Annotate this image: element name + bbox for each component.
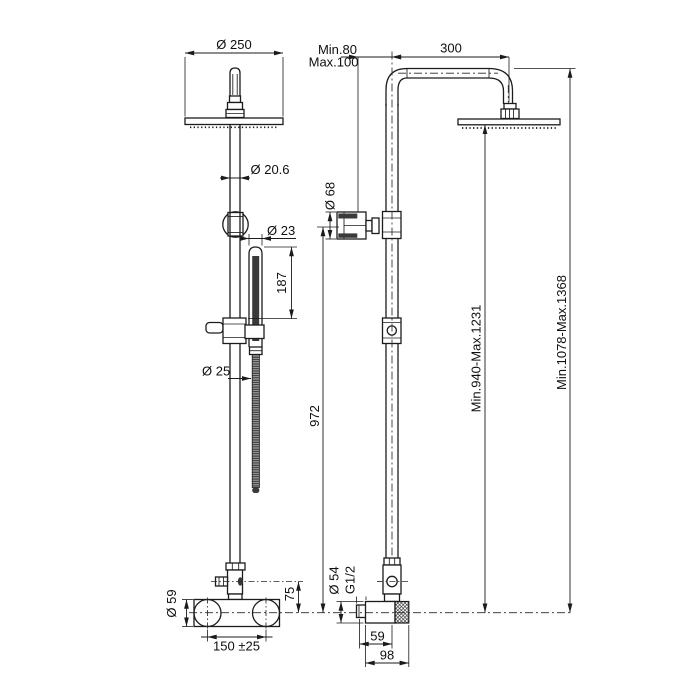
side-view: [337, 52, 560, 624]
dim-hose-diameter: Ø 25: [202, 364, 251, 379]
dim-arm-reach: 300: [392, 41, 509, 103]
dim-riser-length: 972: [307, 227, 339, 613]
label-head-height-range: Min.940-Max.1231: [468, 305, 483, 413]
front-mixer-valve: [194, 563, 280, 627]
side-handshower-assembly: [337, 212, 401, 240]
side-knurled-knob: [395, 602, 409, 624]
dim-union-diameter: Ø 59: [164, 589, 193, 626]
label-total-depth: 98: [380, 648, 394, 663]
front-head-connector: [226, 68, 244, 118]
label-connection-thread: G1/2: [342, 566, 357, 594]
label-wall-distance-max: Max.100: [309, 55, 359, 70]
side-shower-arm: [386, 69, 513, 107]
dim-total-height-range: Min.1078-Max.1368: [514, 69, 576, 613]
label-diverter-offset: 75: [282, 587, 297, 601]
front-handshower-holder: [245, 325, 264, 339]
front-shower-head: [185, 118, 283, 127]
side-wall-stub: [357, 605, 367, 618]
label-total-height-range: Min.1078-Max.1368: [554, 275, 569, 390]
dim-head-height-range: Min.940-Max.1231: [468, 125, 485, 613]
side-shower-head: [458, 104, 560, 129]
side-mixer-valve: [357, 558, 409, 623]
dim-diverter-offset: 75: [282, 582, 299, 613]
label-valve-body-diameter: Ø 54: [326, 566, 341, 594]
technical-drawing: Ø 250 Ø 20.6 Ø 23 187 Ø 25: [0, 0, 700, 700]
dimensions: Ø 250 Ø 20.6 Ø 23 187 Ø 25: [164, 37, 576, 667]
front-view: [185, 68, 283, 627]
label-union-diameter: Ø 59: [164, 589, 179, 617]
drawing-canvas: Ø 250 Ø 20.6 Ø 23 187 Ø 25: [0, 0, 700, 700]
label-handshower-head-diameter: Ø 68: [322, 182, 337, 210]
label-arm-reach: 300: [440, 41, 462, 56]
label-wall-to-axis: 59: [370, 629, 384, 644]
label-handshower-diameter: Ø 23: [267, 223, 295, 238]
front-hose: [250, 347, 263, 493]
dim-connection-thread: G1/2: [342, 566, 366, 604]
label-union-spacing: 150 ±25: [213, 639, 260, 654]
label-handshower-length: 187: [274, 272, 289, 294]
label-head-diameter-front: Ø 250: [216, 37, 251, 52]
dim-handshower-head-diameter: Ø 68: [322, 182, 337, 239]
label-riser-length: 972: [307, 405, 322, 427]
dim-union-spacing: 150 ±25: [201, 630, 273, 654]
label-hose-diameter: Ø 25: [202, 364, 230, 379]
label-riser-diameter: Ø 20.6: [251, 162, 290, 177]
